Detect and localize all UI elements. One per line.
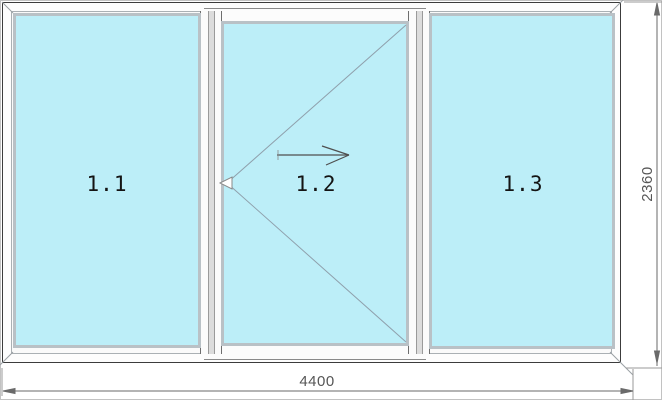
mullion-left [200, 11, 222, 354]
window-technical-drawing: 1.1 1.2 1.3 4400 2360 [0, 0, 662, 400]
mullion-right-profile-shading [416, 11, 423, 354]
mullion-left-profile-shading [208, 11, 215, 354]
pane-label-1-3: 1.3 [473, 172, 573, 196]
mullion-right [408, 11, 430, 354]
height-dimension-value[interactable]: 2360 [640, 134, 656, 234]
sash-bottom-rail [204, 345, 426, 360]
width-dimension-value[interactable]: 4400 [267, 374, 367, 390]
sash-top-rail [204, 8, 426, 22]
pane-label-1-1: 1.1 [57, 172, 157, 196]
pane-label-1-2: 1.2 [266, 172, 366, 196]
